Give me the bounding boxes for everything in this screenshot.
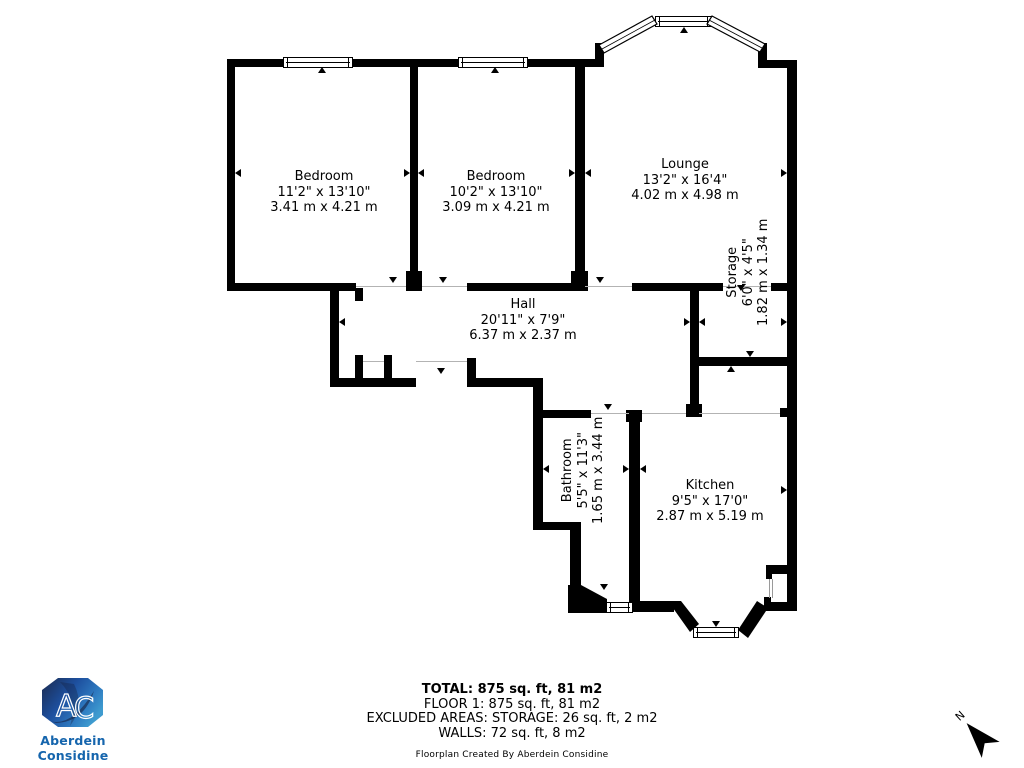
summary-walls: WALLS: 72 sq. ft, 8 m2 bbox=[0, 727, 1024, 742]
room-name: Hall bbox=[423, 297, 623, 313]
bay-window-left bbox=[599, 16, 657, 53]
room-size-imperial: 6'0" x 4'5" bbox=[740, 212, 756, 332]
room-name: Lounge bbox=[585, 157, 785, 173]
summary-excluded: EXCLUDED AREAS: STORAGE: 26 sq. ft, 2 m2 bbox=[0, 712, 1024, 727]
room-label-lounge: Lounge 13'2" x 16'4" 4.02 m x 4.98 m bbox=[585, 157, 785, 204]
bay-window-right bbox=[707, 16, 765, 52]
angled-wall bbox=[668, 601, 699, 632]
room-size-imperial: 9'5" x 17'0" bbox=[610, 494, 810, 510]
floorplan-page: N A C Bedroom 11'2" x 13'10" 3.41 m x 4.… bbox=[0, 0, 1024, 768]
room-label-hall: Hall 20'11" x 7'9" 6.37 m x 2.37 m bbox=[423, 297, 623, 344]
room-label-bedroom2: Bedroom 10'2" x 13'10" 3.09 m x 4.21 m bbox=[396, 169, 596, 216]
floorplan-credit: Floorplan Created By Aberdein Considine bbox=[0, 748, 1024, 763]
angled-wall bbox=[568, 585, 607, 613]
room-label-kitchen: Kitchen 9'5" x 17'0" 2.87 m x 5.19 m bbox=[610, 478, 810, 525]
area-summary: TOTAL: 875 sq. ft, 81 m2 FLOOR 1: 875 sq… bbox=[0, 683, 1024, 763]
floorplan-vector-layer: N A C bbox=[0, 0, 1024, 768]
brand-wordmark: Aberdein Considine bbox=[10, 733, 136, 763]
room-size-metric: 1.82 m x 1.34 m bbox=[756, 212, 772, 332]
room-name: Storage bbox=[725, 212, 741, 332]
summary-floor1: FLOOR 1: 875 sq. ft, 81 m2 bbox=[0, 698, 1024, 713]
room-size-imperial: 5'5" x 11'3" bbox=[575, 405, 591, 535]
room-size-imperial: 11'2" x 13'10" bbox=[224, 185, 424, 201]
summary-total: TOTAL: 875 sq. ft, 81 m2 bbox=[0, 683, 1024, 698]
room-size-imperial: 20'11" x 7'9" bbox=[423, 313, 623, 329]
room-name: Bathroom bbox=[560, 405, 576, 535]
room-size-metric: 2.87 m x 5.19 m bbox=[610, 509, 810, 525]
room-size-metric: 3.09 m x 4.21 m bbox=[396, 200, 596, 216]
room-name: Bedroom bbox=[224, 169, 424, 185]
room-size-metric: 4.02 m x 4.98 m bbox=[585, 188, 785, 204]
angled-wall bbox=[738, 601, 768, 638]
room-label-bedroom1: Bedroom 11'2" x 13'10" 3.41 m x 4.21 m bbox=[224, 169, 424, 216]
room-name: Bedroom bbox=[396, 169, 596, 185]
room-size-metric: 1.65 m x 3.44 m bbox=[591, 405, 607, 535]
room-size-metric: 3.41 m x 4.21 m bbox=[224, 200, 424, 216]
room-size-imperial: 13'2" x 16'4" bbox=[585, 173, 785, 189]
room-name: Kitchen bbox=[610, 478, 810, 494]
room-size-metric: 6.37 m x 2.37 m bbox=[423, 328, 623, 344]
room-size-imperial: 10'2" x 13'10" bbox=[396, 185, 596, 201]
room-label-storage: Storage 6'0" x 4'5" 1.82 m x 1.34 m bbox=[688, 217, 808, 327]
